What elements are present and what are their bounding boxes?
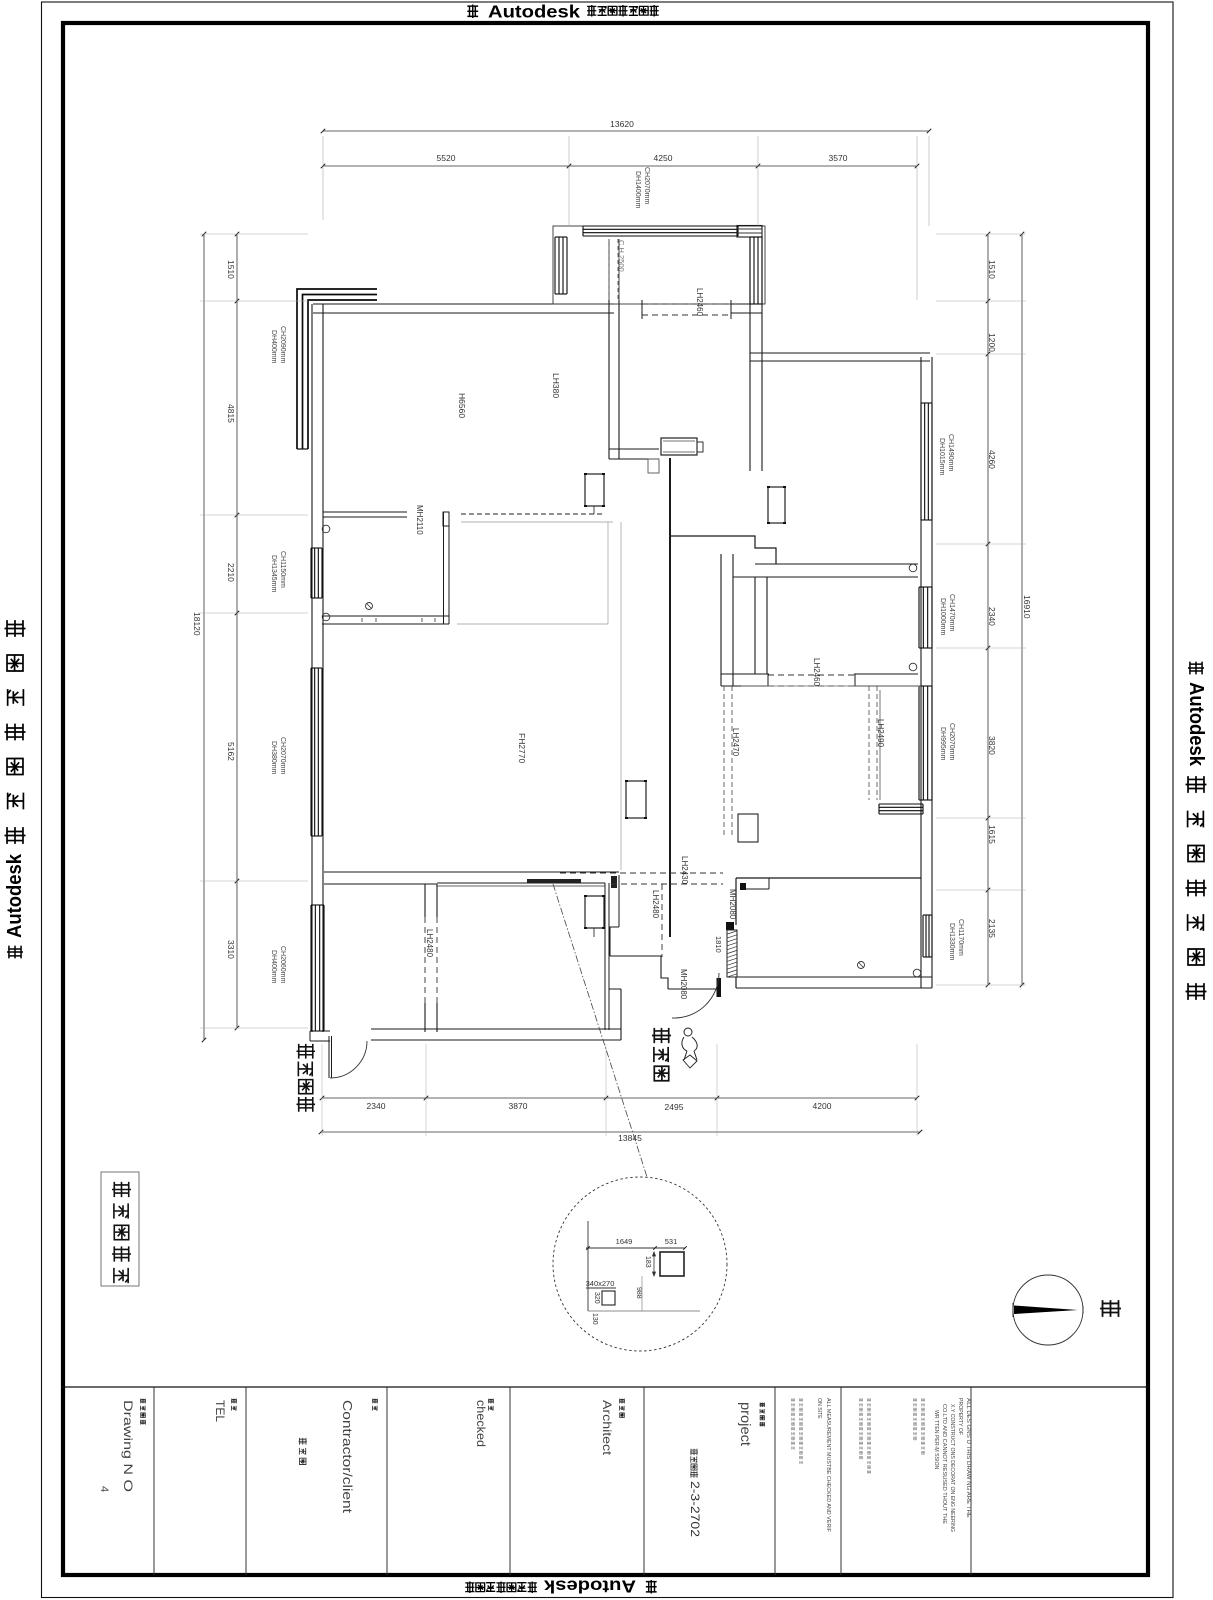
svg-text:LH2480: LH2480	[425, 929, 434, 958]
svg-text:1510: 1510	[226, 260, 236, 279]
svg-text:1810: 1810	[714, 936, 723, 953]
svg-text:CH2090mm: CH2090mm	[279, 326, 286, 364]
svg-text:2495: 2495	[665, 1102, 684, 1112]
svg-text:DH400mm: DH400mm	[270, 330, 277, 364]
svg-text:4: 4	[98, 1486, 110, 1492]
svg-text:ALL MEASUREMENT MUSTBE CHECKED: ALL MEASUREMENT MUSTBE CHECKED AND VERIF	[825, 1398, 831, 1532]
svg-text:2340: 2340	[367, 1101, 386, 1111]
svg-text:5162: 5162	[226, 742, 236, 761]
svg-text:4260: 4260	[987, 450, 997, 469]
svg-text:MH2080: MH2080	[679, 969, 688, 1000]
svg-text:Autodesk: Autodesk	[4, 853, 26, 938]
svg-text:3310: 3310	[226, 940, 236, 959]
svg-text:project: project	[738, 1402, 754, 1446]
svg-text:C.H.2500: C.H.2500	[617, 240, 626, 272]
svg-text:13620: 13620	[610, 119, 634, 129]
svg-text:3570: 3570	[829, 153, 848, 163]
svg-text:MH2080: MH2080	[728, 889, 737, 920]
svg-text:Drawing N O: Drawing N O	[121, 1400, 135, 1492]
svg-text:5520: 5520	[437, 153, 456, 163]
svg-text:Autodesk: Autodesk	[1185, 682, 1207, 767]
svg-text:DH1000mm: DH1000mm	[939, 598, 946, 636]
svg-text:18120: 18120	[192, 612, 202, 636]
svg-text:DH1330mm: DH1330mm	[948, 923, 955, 961]
svg-text:340x270: 340x270	[586, 1279, 615, 1288]
svg-text:Contractor/client: Contractor/client	[340, 1400, 355, 1513]
svg-text:2-3-2702: 2-3-2702	[688, 1481, 702, 1537]
svg-text:183: 183	[644, 1256, 651, 1268]
svg-text:CO.LTD AND CANNOT RESUSED TH: CO.LTD AND CANNOT RESUSED THOUT THE	[941, 1404, 947, 1525]
svg-text:ON SITE: ON SITE	[816, 1398, 822, 1419]
svg-text:X.Y CONSTRUCT ONS DECORAT ON E: X.Y CONSTRUCT ONS DECORAT ON ENG NEERING	[949, 1404, 955, 1532]
svg-text:3820: 3820	[987, 736, 997, 755]
svg-text:LH2480: LH2480	[651, 890, 660, 919]
svg-text:Architect: Architect	[600, 1400, 614, 1456]
svg-text:531: 531	[665, 1237, 678, 1246]
svg-text:DH1345mm: DH1345mm	[270, 555, 277, 593]
svg-text:LH2470: LH2470	[731, 728, 740, 757]
svg-text:MH2110: MH2110	[415, 505, 424, 535]
svg-text:2135: 2135	[987, 919, 997, 938]
svg-text:LH2460: LH2460	[695, 288, 704, 317]
svg-text:320: 320	[593, 1292, 600, 1304]
svg-text:DH380mm: DH380mm	[270, 741, 277, 775]
svg-text:988: 988	[635, 1287, 642, 1299]
svg-text:H6560: H6560	[457, 393, 467, 418]
svg-text:DH1400mm: DH1400mm	[634, 171, 641, 209]
svg-text:DH995mm: DH995mm	[939, 727, 946, 761]
svg-text:TEL: TEL	[213, 1400, 227, 1422]
svg-text:3870: 3870	[509, 1101, 528, 1111]
svg-text:CH2070mm: CH2070mm	[948, 723, 955, 761]
svg-text:1615: 1615	[987, 825, 997, 844]
svg-text:DH400mm: DH400mm	[270, 950, 277, 984]
svg-text:ALL DES GNS U THIS DRAW NG AR: ALL DES GNS U THIS DRAW NG ARE THE	[965, 1398, 971, 1519]
svg-text:CH1150mm: CH1150mm	[279, 551, 286, 588]
svg-text:Autodesk: Autodesk	[544, 1577, 636, 1597]
svg-text:WR TTEN PER-M SSION: WR TTEN PER-M SSION	[933, 1410, 939, 1470]
svg-text:4250: 4250	[654, 153, 673, 163]
svg-text:CH1170mm: CH1170mm	[957, 919, 964, 956]
svg-text:FH2770: FH2770	[517, 733, 527, 764]
svg-text:CH1490mm: CH1490mm	[947, 434, 954, 472]
svg-text:16910: 16910	[1022, 595, 1032, 619]
svg-text:DH1015mm: DH1015mm	[938, 438, 945, 476]
svg-text:2340: 2340	[987, 607, 997, 626]
svg-text:1510: 1510	[987, 260, 997, 279]
svg-text:13845: 13845	[618, 1133, 642, 1143]
svg-text:Autodesk: Autodesk	[488, 2, 580, 22]
svg-text:2210: 2210	[226, 563, 236, 582]
svg-text:PROPERTY OF: PROPERTY OF	[957, 1398, 963, 1435]
svg-text:4815: 4815	[226, 404, 236, 423]
svg-text:130: 130	[591, 1313, 598, 1325]
svg-text:LH380: LH380	[551, 373, 561, 398]
svg-text:4200: 4200	[813, 1101, 832, 1111]
svg-text:CH2060mm: CH2060mm	[279, 946, 286, 984]
svg-text:LH2460: LH2460	[812, 658, 821, 687]
svg-text:1200: 1200	[987, 333, 997, 352]
svg-text:CH2070mm: CH2070mm	[279, 737, 286, 775]
svg-text:checked: checked	[474, 1400, 488, 1447]
svg-text:CH1470mm: CH1470mm	[948, 594, 955, 632]
svg-text:CH2070mm: CH2070mm	[643, 167, 650, 205]
svg-text:LH2490: LH2490	[876, 719, 885, 748]
svg-text:LH2430: LH2430	[680, 856, 689, 885]
svg-text:1649: 1649	[616, 1237, 633, 1246]
